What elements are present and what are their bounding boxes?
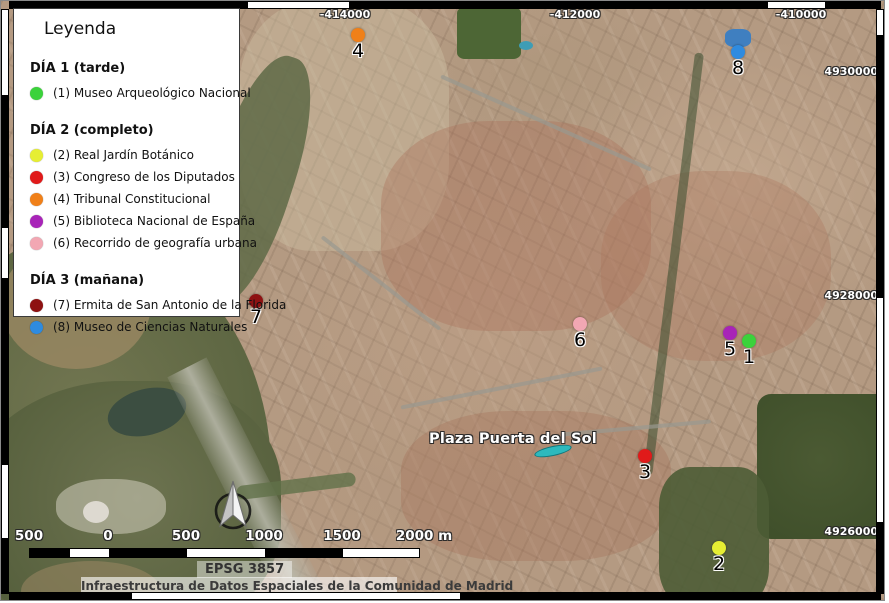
- map-marker-number-6: 6: [574, 331, 586, 350]
- scale-label: 500: [172, 528, 200, 544]
- map-frame-border-left: [1, 9, 9, 594]
- legend-item-1[interactable]: (1) Museo Arqueológico Nacional: [30, 82, 233, 104]
- white-dome: [83, 501, 109, 523]
- grid-label-x: -414000: [320, 8, 371, 21]
- scale-label: 500: [15, 528, 43, 544]
- legend-item-label: (8) Museo de Ciencias Naturales: [53, 320, 247, 334]
- map-marker-number-4: 4: [352, 42, 364, 61]
- legend-item-label: (4) Tribunal Constitucional: [53, 192, 210, 206]
- grid-label-x: -412000: [550, 8, 601, 21]
- grid-label-x: -410000: [776, 8, 827, 21]
- legend-section-heading: DÍA 3 (mañana): [30, 273, 233, 288]
- legend-color-dot: [30, 299, 43, 312]
- legend-item-label: (1) Museo Arqueológico Nacional: [53, 86, 251, 100]
- legend-title: Leyenda: [44, 19, 233, 39]
- map-marker-number-5: 5: [724, 340, 736, 359]
- urban-rooftops: [601, 171, 831, 361]
- legend-item-label: (5) Biblioteca Nacional de España: [53, 214, 255, 228]
- legend-item-5[interactable]: (5) Biblioteca Nacional de España: [30, 210, 233, 232]
- legend-color-dot: [30, 215, 43, 228]
- legend-section-heading: DÍA 2 (completo): [30, 123, 233, 138]
- legend-item-3[interactable]: (3) Congreso de los Diputados: [30, 166, 233, 188]
- pool: [519, 41, 533, 50]
- map-frame-border-right: [876, 9, 884, 594]
- epsg-label: EPSG 3857: [197, 561, 292, 578]
- legend-item-2[interactable]: (2) Real Jardín Botánico: [30, 144, 233, 166]
- map-marker-number-8: 8: [732, 59, 744, 78]
- scale-label: 0: [103, 528, 112, 544]
- legend-item-label: (6) Recorrido de geografía urbana: [53, 236, 257, 250]
- map-marker-number-2: 2: [713, 555, 725, 574]
- legend-item-4[interactable]: (4) Tribunal Constitucional: [30, 188, 233, 210]
- map-frame-border-bottom: [9, 592, 881, 600]
- legend-color-dot: [30, 149, 43, 162]
- legend-panel: Leyenda DÍA 1 (tarde)(1) Museo Arqueológ…: [13, 8, 240, 317]
- amusement-park: [56, 479, 166, 534]
- legend-color-dot: [30, 321, 43, 334]
- scale-label: 1500: [323, 528, 361, 544]
- map-layout-frame: Plaza Puerta del Sol -414000-412000-4100…: [0, 0, 885, 601]
- sports-field: [457, 7, 521, 59]
- legend-color-dot: [30, 171, 43, 184]
- legend-item-label: (2) Real Jardín Botánico: [53, 148, 194, 162]
- map-marker-number-3: 3: [639, 463, 651, 482]
- map-marker-number-1: 1: [743, 348, 755, 367]
- legend-item-6[interactable]: (6) Recorrido de geografía urbana: [30, 232, 233, 254]
- street-line: [401, 366, 603, 409]
- legend-sections: DÍA 1 (tarde)(1) Museo Arqueológico Naci…: [30, 61, 233, 338]
- legend-color-dot: [30, 237, 43, 250]
- grid-label-y: 4930000: [824, 65, 878, 78]
- legend-color-dot: [30, 193, 43, 206]
- scale-bar: [29, 548, 420, 558]
- legend-item-label: (3) Congreso de los Diputados: [53, 170, 235, 184]
- legend-color-dot: [30, 87, 43, 100]
- grid-label-y: 4926000: [824, 525, 878, 538]
- legend-item-label: (7) Ermita de San Antonio de la Florida: [53, 298, 286, 312]
- scale-label: 2000 m: [396, 528, 452, 544]
- plaza-puerta-del-sol-label: Plaza Puerta del Sol: [429, 431, 597, 447]
- north-arrow-icon: [207, 479, 259, 535]
- grid-label-y: 4928000: [824, 289, 878, 302]
- park-retiro: [757, 394, 885, 539]
- legend-item-7[interactable]: (7) Ermita de San Antonio de la Florida: [30, 294, 233, 316]
- park-botanico: [659, 467, 769, 601]
- legend-item-8[interactable]: (8) Museo de Ciencias Naturales: [30, 316, 233, 338]
- legend-section-heading: DÍA 1 (tarde): [30, 61, 233, 76]
